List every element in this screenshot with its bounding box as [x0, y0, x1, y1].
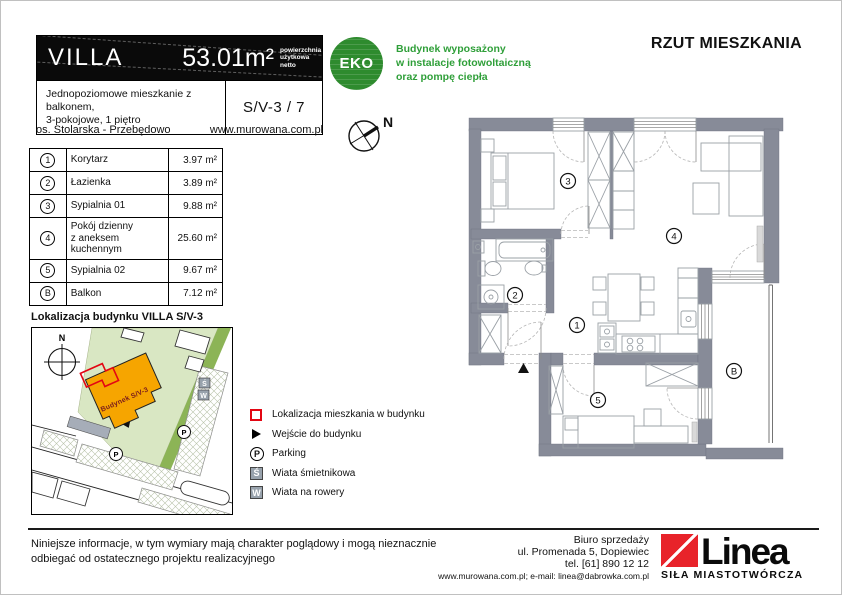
legend-item: Ś Wiata śmietnikowa	[250, 464, 425, 484]
legend-item: Lokalizacja mieszkania w budynku	[250, 405, 425, 425]
header-banner: VILLA 53.01m² powierzchnia użytkowa nett…	[37, 36, 322, 80]
logo-red-square-icon	[661, 534, 698, 567]
room-name: Sypialnia 01	[66, 195, 169, 218]
site-compass-label: N	[59, 333, 66, 343]
area-note: powierzchnia użytkowa netto	[274, 47, 322, 70]
brochure-page: VILLA 53.01m² powierzchnia użytkowa nett…	[0, 0, 842, 595]
room-name: Pokój dzienny z aneksem kuchennym	[66, 218, 169, 260]
room-table: 1 Korytarz 3.97 m² 2 Łazienka 3.89 m² 3 …	[29, 148, 223, 306]
project-title: VILLA	[37, 44, 123, 72]
plan-label-livingroom: 4	[671, 232, 676, 243]
room-name: Korytarz	[66, 149, 169, 172]
parking-marker: P	[181, 428, 186, 437]
room-name: Sypialnia 02	[66, 259, 169, 282]
room-number-badge: 4	[40, 231, 55, 246]
legend-label: Parking	[272, 448, 306, 459]
compass-icon: N	[342, 109, 400, 159]
site-map-drawing: Budynek S/V-3 P P Ś W N	[32, 328, 232, 514]
entrance-arrow-icon	[252, 429, 261, 439]
room-number-badge: 3	[40, 199, 55, 214]
estate-location: os. Stolarska - Przebędowo	[36, 124, 171, 136]
disclaimer-text: Niniejsze informacje, w tym wymiary mają…	[31, 537, 436, 566]
site-compass-icon: N	[44, 333, 80, 380]
bike-shelter-icon: W	[250, 486, 263, 499]
office-address: Biuro sprzedaży ul. Promenada 5, Dopiewi…	[518, 534, 649, 570]
table-row: 3 Sypialnia 01 9.88 m²	[30, 195, 223, 218]
table-row: 2 Łazienka 3.89 m²	[30, 172, 223, 195]
contact-line: www.murowana.com.pl; e-mail: linea@dabro…	[438, 571, 649, 581]
header-underline-row: os. Stolarska - Przebędowo www.murowana.…	[36, 124, 323, 136]
legend-item: Wejście do budynku	[250, 425, 425, 445]
room-area: 9.67 m²	[169, 259, 223, 282]
plan-label-bathroom: 2	[512, 291, 517, 302]
website-text: www.murowana.com.pl	[210, 124, 323, 136]
room-number-badge: 1	[40, 153, 55, 168]
entrance-arrow	[518, 363, 529, 373]
logo-tagline: SIŁA MIASTOTWÓRCZA	[661, 569, 821, 581]
floor-plan-drawing: 1 2 3 4 5 B	[456, 101, 796, 466]
logo-wordmark: Linea	[701, 536, 788, 567]
page-title: RZUT MIESZKANIA	[651, 35, 802, 53]
table-row: 5 Sypialnia 02 9.67 m²	[30, 259, 223, 282]
linea-logo: Linea SIŁA MIASTOTWÓRCZA	[661, 534, 821, 581]
trash-shelter-icon: Ś	[250, 467, 263, 480]
map-legend: Lokalizacja mieszkania w budynku Wejście…	[250, 405, 425, 503]
bike-shelter-marker: W	[200, 393, 207, 400]
apartment-location-icon	[250, 409, 262, 421]
parking-icon: P	[250, 447, 264, 461]
table-row: B Balkon 7.12 m²	[30, 282, 223, 305]
plan-label-corridor: 1	[574, 321, 579, 332]
plan-label-balcony: B	[731, 367, 737, 378]
trash-shelter-marker: Ś	[202, 379, 207, 388]
site-map-frame: Budynek S/V-3 P P Ś W N	[31, 327, 233, 515]
eco-badge: EKO	[330, 37, 383, 90]
room-area: 9.88 m²	[169, 195, 223, 218]
plan-label-bedroom1: 3	[565, 177, 570, 188]
logo-top: Linea	[661, 534, 821, 567]
room-area: 7.12 m²	[169, 282, 223, 305]
room-area: 3.97 m²	[169, 149, 223, 172]
room-area: 25.60 m²	[169, 218, 223, 260]
table-row: 4 Pokój dzienny z aneksem kuchennym 25.6…	[30, 218, 223, 260]
site-map-title: Lokalizacja budynku VILLA S/V-3	[31, 311, 203, 323]
room-area: 3.89 m²	[169, 172, 223, 195]
legend-item: W Wiata na rowery	[250, 483, 425, 503]
room-number-badge: 2	[40, 176, 55, 191]
legend-item: P Parking	[250, 444, 425, 464]
legend-label: Wejście do budynku	[272, 429, 361, 440]
eco-description: Budynek wyposażony w instalacje fotowolt…	[396, 42, 531, 84]
legend-label: Lokalizacja mieszkania w budynku	[272, 409, 425, 420]
parking-marker: P	[113, 450, 118, 459]
legend-label: Wiata na rowery	[272, 487, 344, 498]
room-number-badge: 5	[40, 263, 55, 278]
room-number-badge: B	[40, 286, 55, 301]
table-row: 1 Korytarz 3.97 m²	[30, 149, 223, 172]
plan-label-bedroom2: 5	[595, 396, 600, 407]
legend-label: Wiata śmietnikowa	[272, 468, 355, 479]
room-name: Balkon	[66, 282, 169, 305]
compass-label: N	[383, 114, 393, 130]
header-block: VILLA 53.01m² powierzchnia użytkowa nett…	[36, 35, 323, 135]
room-name: Łazienka	[66, 172, 169, 195]
footer-divider	[28, 528, 819, 530]
